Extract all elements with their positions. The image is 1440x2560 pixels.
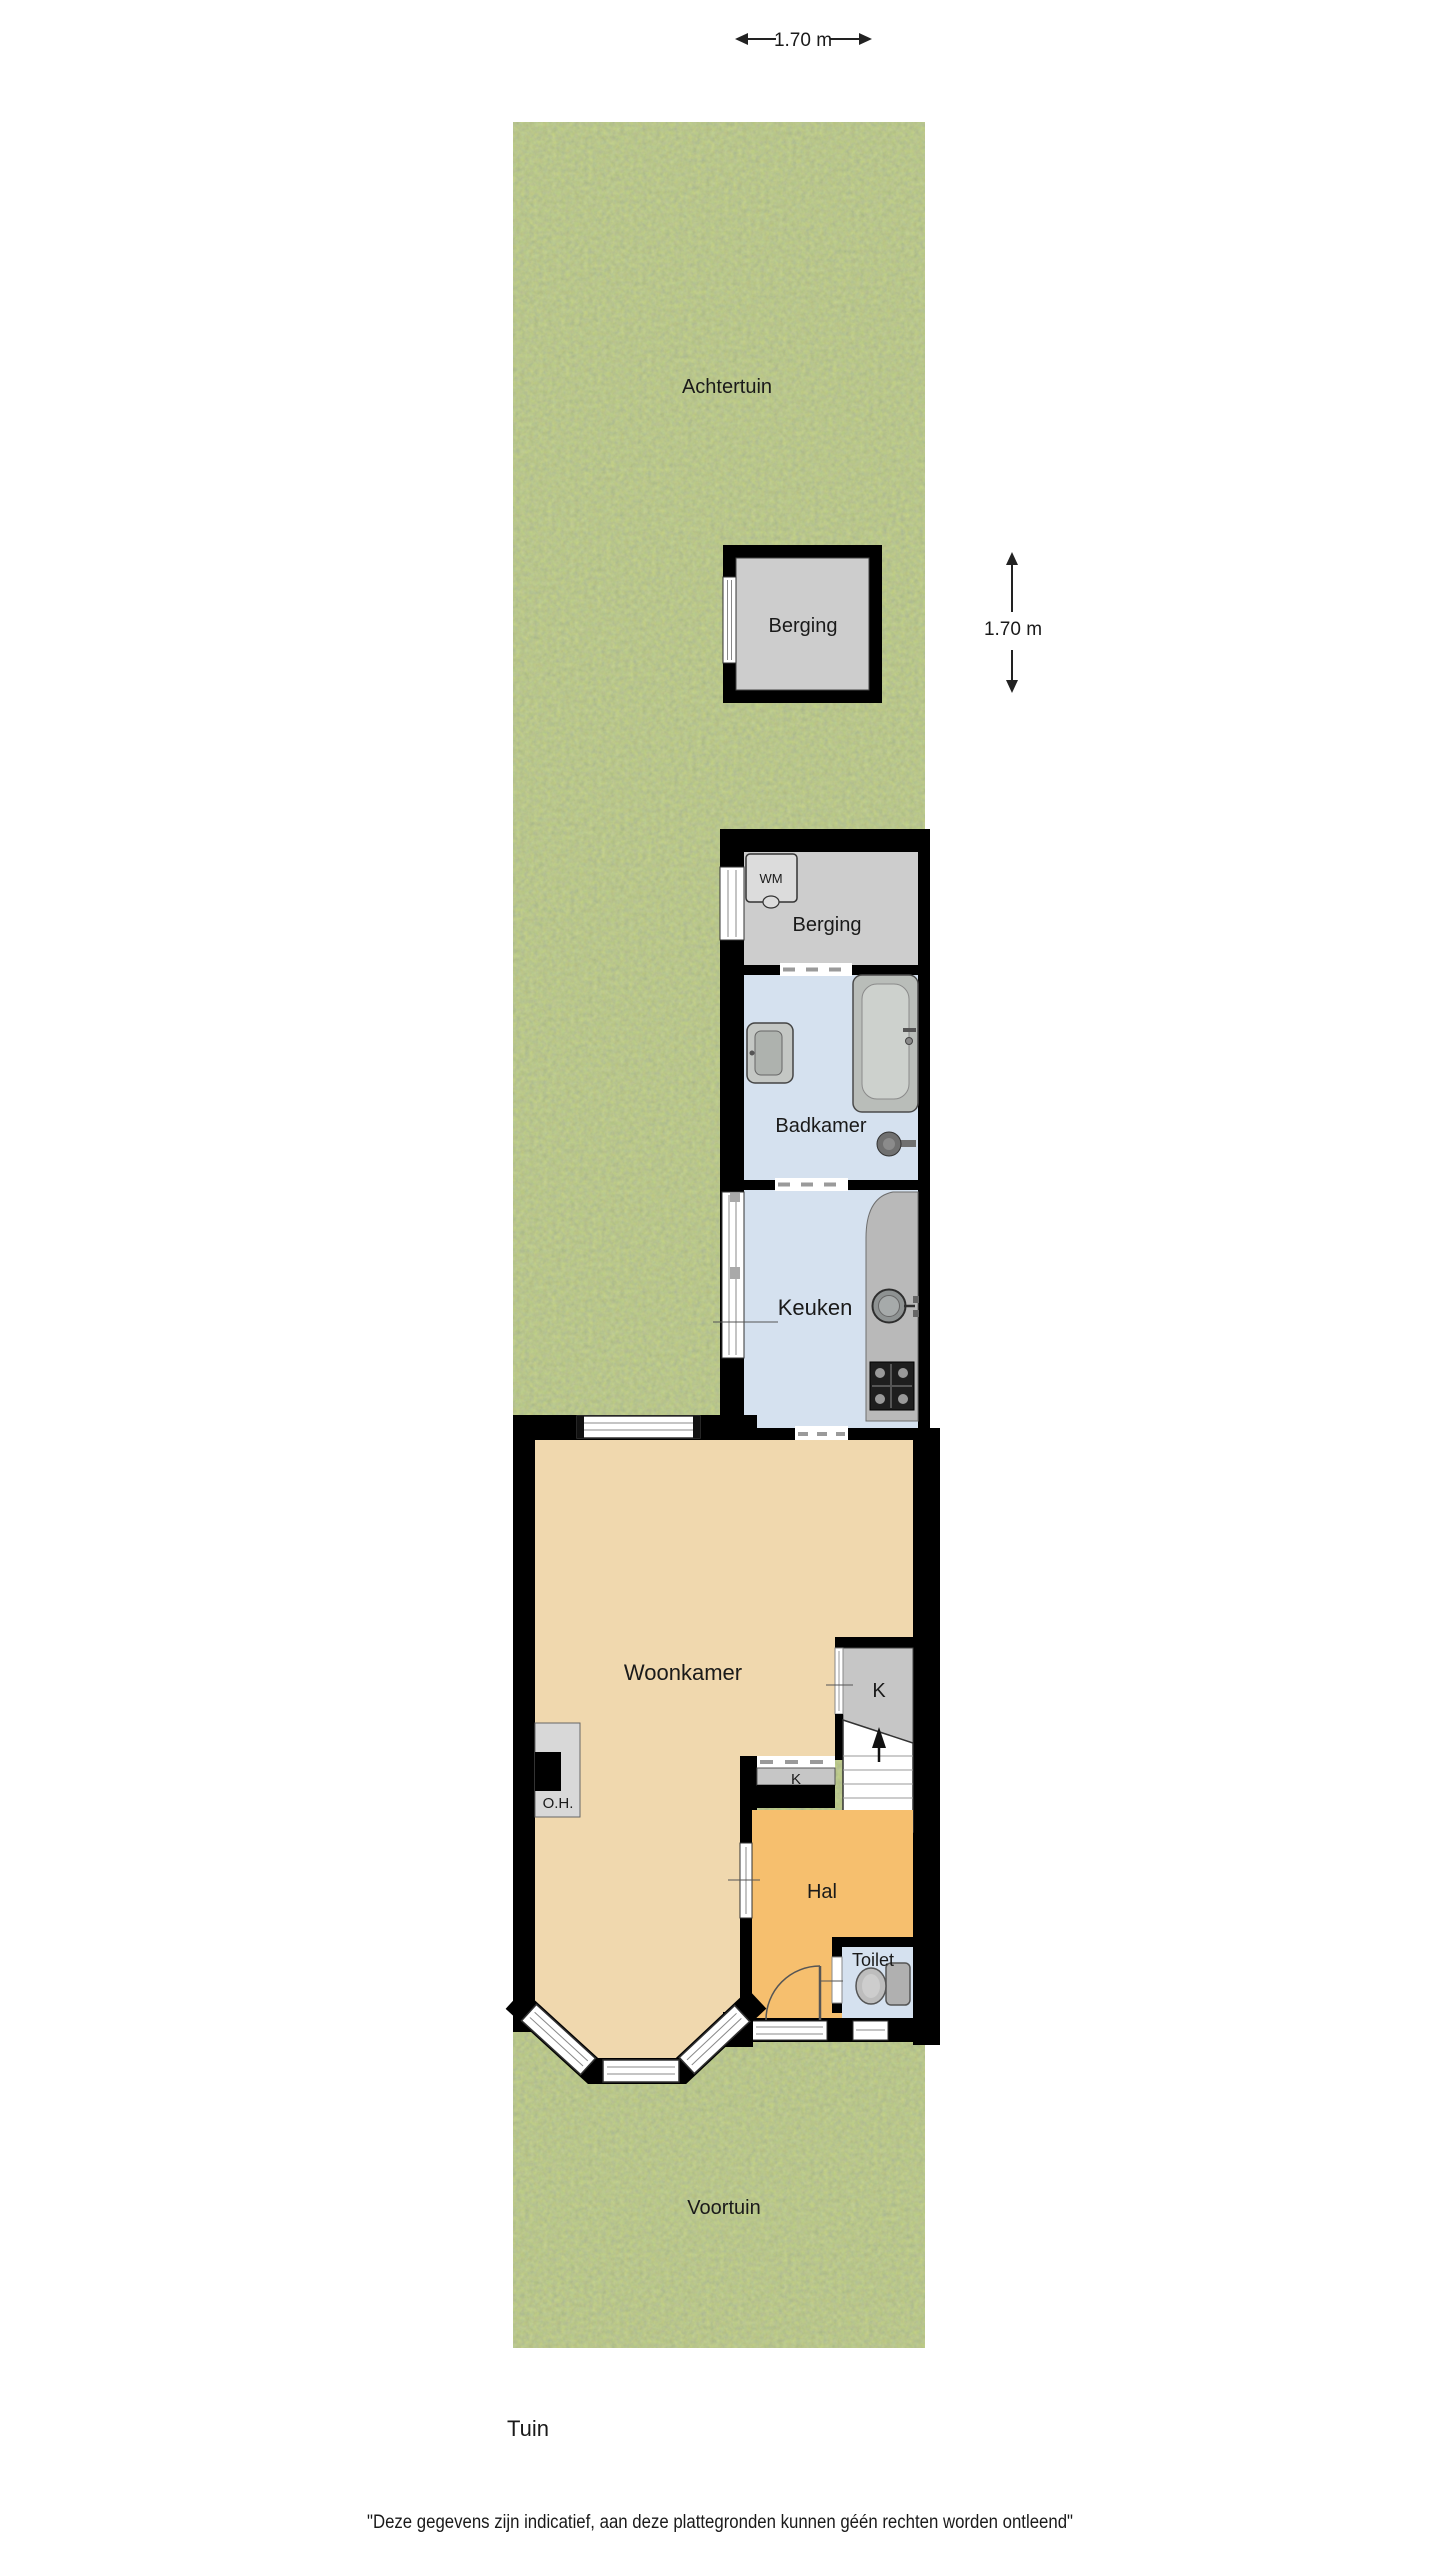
washer-label: WM bbox=[759, 871, 782, 886]
stove bbox=[870, 1362, 914, 1410]
opening-badkamer-keuken bbox=[775, 1178, 848, 1191]
woonkamer-label: Woonkamer bbox=[624, 1660, 742, 1685]
small-closet-opening bbox=[757, 1756, 835, 1768]
front-side-window bbox=[853, 2021, 888, 2040]
toilet-top-wall bbox=[832, 1937, 913, 1947]
small-closet-label: K bbox=[791, 1771, 801, 1788]
dimension-right-label: 1.70 m bbox=[984, 619, 1042, 640]
dimension-top-label: 1.70 m bbox=[774, 30, 832, 51]
arrow-right-icon bbox=[859, 33, 872, 45]
achtertuin-label: Achtertuin bbox=[682, 376, 772, 398]
berging-door bbox=[720, 867, 744, 940]
kitchen-window bbox=[722, 1192, 744, 1358]
disclaimer-text: "Deze gegevens zijn indicatief, aan deze… bbox=[367, 2512, 1073, 2533]
badkamer-label: Badkamer bbox=[775, 1115, 866, 1137]
closet-k-label: K bbox=[872, 1680, 886, 1702]
toilet-door bbox=[832, 1957, 842, 2003]
shed-window bbox=[723, 577, 736, 663]
open-haard-label: O.H. bbox=[543, 1795, 574, 1812]
arrow-down-icon bbox=[1006, 680, 1018, 693]
opening-berging-badkamer bbox=[780, 963, 852, 976]
closet-top-wall bbox=[835, 1637, 913, 1648]
voortuin-label: Voortuin bbox=[687, 2197, 760, 2219]
closet-k-door bbox=[835, 1648, 843, 1714]
small-closet-wall bbox=[757, 1785, 835, 1808]
shed-berging-label: Berging bbox=[769, 615, 838, 637]
house-berging-label: Berging bbox=[793, 914, 862, 936]
woonkamer-back-window bbox=[577, 1416, 700, 1438]
left-wall bbox=[513, 1415, 535, 2032]
hal-label: Hal bbox=[807, 1881, 837, 1903]
main-house bbox=[513, 1415, 940, 2082]
bathroom-sink bbox=[747, 1023, 793, 1083]
floor-plan-svg: 1.70 m 1.70 m bbox=[0, 0, 1440, 2560]
right-wall bbox=[913, 1428, 940, 2045]
bay-window-center bbox=[603, 2060, 679, 2082]
front-door-window bbox=[752, 2021, 827, 2040]
arrow-left-icon bbox=[735, 33, 748, 45]
bathtub bbox=[853, 975, 918, 1112]
keuken-label: Keuken bbox=[778, 1295, 853, 1320]
arrow-up-icon bbox=[1006, 552, 1018, 565]
closet-k-wall-piece bbox=[835, 1714, 843, 1760]
tuin-label: Tuin bbox=[507, 2416, 549, 2441]
toilet-label: Toilet bbox=[852, 1950, 894, 1970]
hall-wall-stub bbox=[740, 1756, 757, 1810]
